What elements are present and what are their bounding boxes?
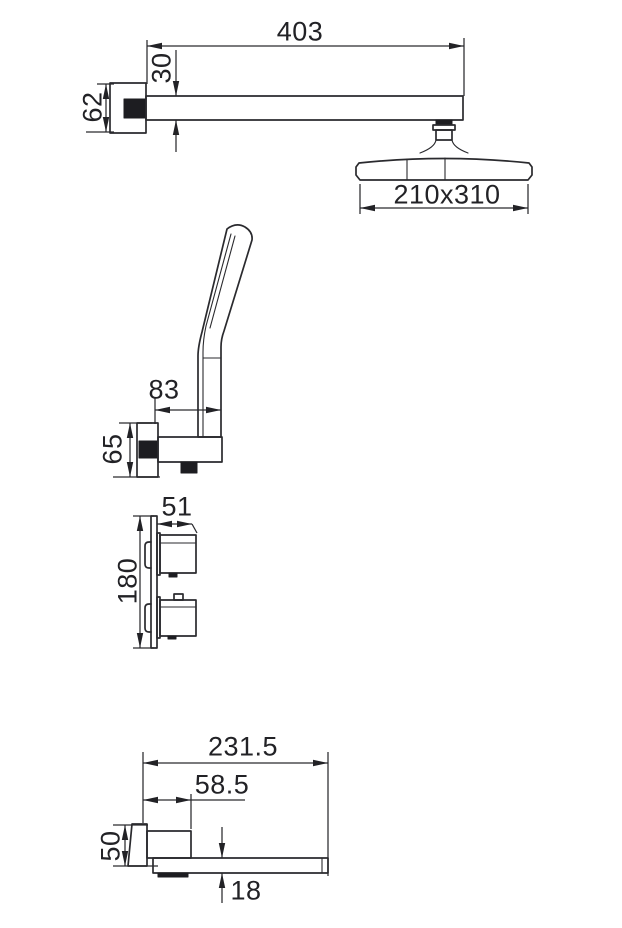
arrowhead-down (127, 462, 133, 477)
arrowhead-right (177, 521, 192, 527)
shower-head (356, 159, 532, 181)
arrowhead-left (143, 760, 158, 766)
arrowhead-up (173, 120, 179, 135)
lower-handle-notch (168, 636, 176, 639)
arrowhead-left (143, 797, 158, 803)
arrowhead-up (137, 516, 143, 531)
dim-label-holder-flange: 65 (97, 433, 127, 464)
arrowhead-right (176, 797, 191, 803)
dim-label-holder-reach: 83 (148, 374, 179, 404)
dim-label-spout-thickness: 18 (230, 875, 261, 905)
arrowhead-up (127, 423, 133, 438)
arrowhead-right (313, 760, 328, 766)
lower-handle-tab (174, 594, 183, 600)
arrowhead-down (137, 633, 143, 648)
spout-wall-flange (128, 824, 147, 866)
arrowhead-right (513, 205, 528, 211)
dim-label-wall-flange: 62 (77, 91, 107, 122)
dim-label-plate-height: 180 (112, 558, 142, 605)
arrowhead-right (206, 407, 221, 413)
technical-drawing-canvas: 403 30 62 210x310 (0, 0, 622, 928)
view-overhead-shower: 403 30 62 210x310 (77, 16, 532, 214)
arrowhead-down (219, 843, 225, 858)
dim-label-flange-size: 50 (95, 830, 125, 861)
head-bell-right (452, 140, 468, 153)
arrowhead-left (157, 521, 172, 527)
bracket-wall-inlet (139, 441, 157, 458)
arrowhead-left (147, 43, 162, 49)
drawing-sheet: 403 30 62 210x310 (0, 0, 622, 928)
dim-label-handle-depth: 51 (161, 491, 192, 521)
spout-outlet (158, 873, 188, 877)
dim-label-head-size: 210x310 (393, 179, 500, 209)
spout-body (147, 831, 191, 858)
dim-label-total-length: 231.5 (208, 731, 278, 761)
shower-arm-wall-inlet (124, 99, 146, 118)
bracket-hose-nut (181, 462, 197, 473)
view-bath-spout: 231.5 58.5 50 18 (95, 731, 328, 905)
upper-handle-notch (169, 573, 177, 577)
arrowhead-right (449, 43, 464, 49)
upper-handle-body (160, 535, 196, 573)
dim-label-arm-thickness: 30 (146, 52, 176, 83)
arrowhead-left (360, 205, 375, 211)
shower-arm (146, 96, 463, 120)
lower-handle-body (160, 600, 196, 636)
ext-line-diagonal (192, 524, 197, 533)
valve-wall-plate (151, 516, 157, 648)
dim-label-arm-length: 403 (277, 16, 324, 46)
view-hand-shower: 83 65 (97, 225, 252, 477)
dim-label-body-length: 58.5 (195, 769, 250, 799)
spout-blade (153, 858, 328, 873)
head-connector-nut (436, 130, 452, 140)
upper-handle-recess (145, 542, 151, 568)
bracket-holder-arm (158, 437, 222, 462)
arrowhead-up (219, 873, 225, 888)
lower-handle-recess (145, 604, 151, 632)
head-bell-left (420, 140, 436, 153)
view-mixer-valve: 51 180 (112, 491, 197, 648)
arrowhead-left (155, 407, 170, 413)
